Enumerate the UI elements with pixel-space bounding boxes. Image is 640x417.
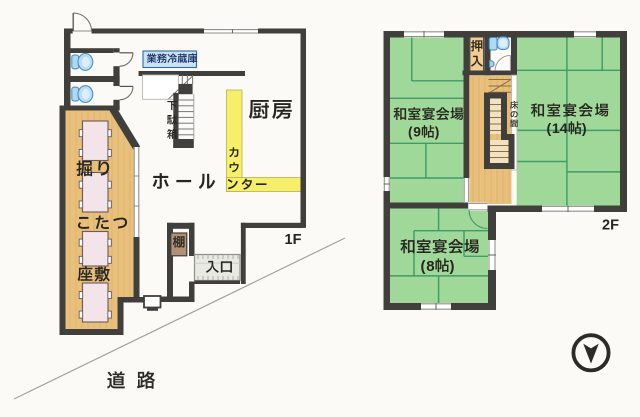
svg-text:8: 8: [426, 258, 434, 275]
svg-text:1F: 1F: [285, 232, 302, 248]
svg-text:): ): [450, 258, 455, 275]
svg-text:1: 1: [552, 121, 560, 137]
svg-text:2F: 2F: [602, 218, 619, 234]
svg-text:(: (: [421, 258, 426, 275]
svg-text:): ): [582, 121, 587, 137]
svg-text:): ): [435, 125, 440, 140]
svg-text:(: (: [547, 121, 552, 137]
svg-text:9: 9: [413, 125, 421, 140]
svg-text:4: 4: [560, 121, 568, 137]
